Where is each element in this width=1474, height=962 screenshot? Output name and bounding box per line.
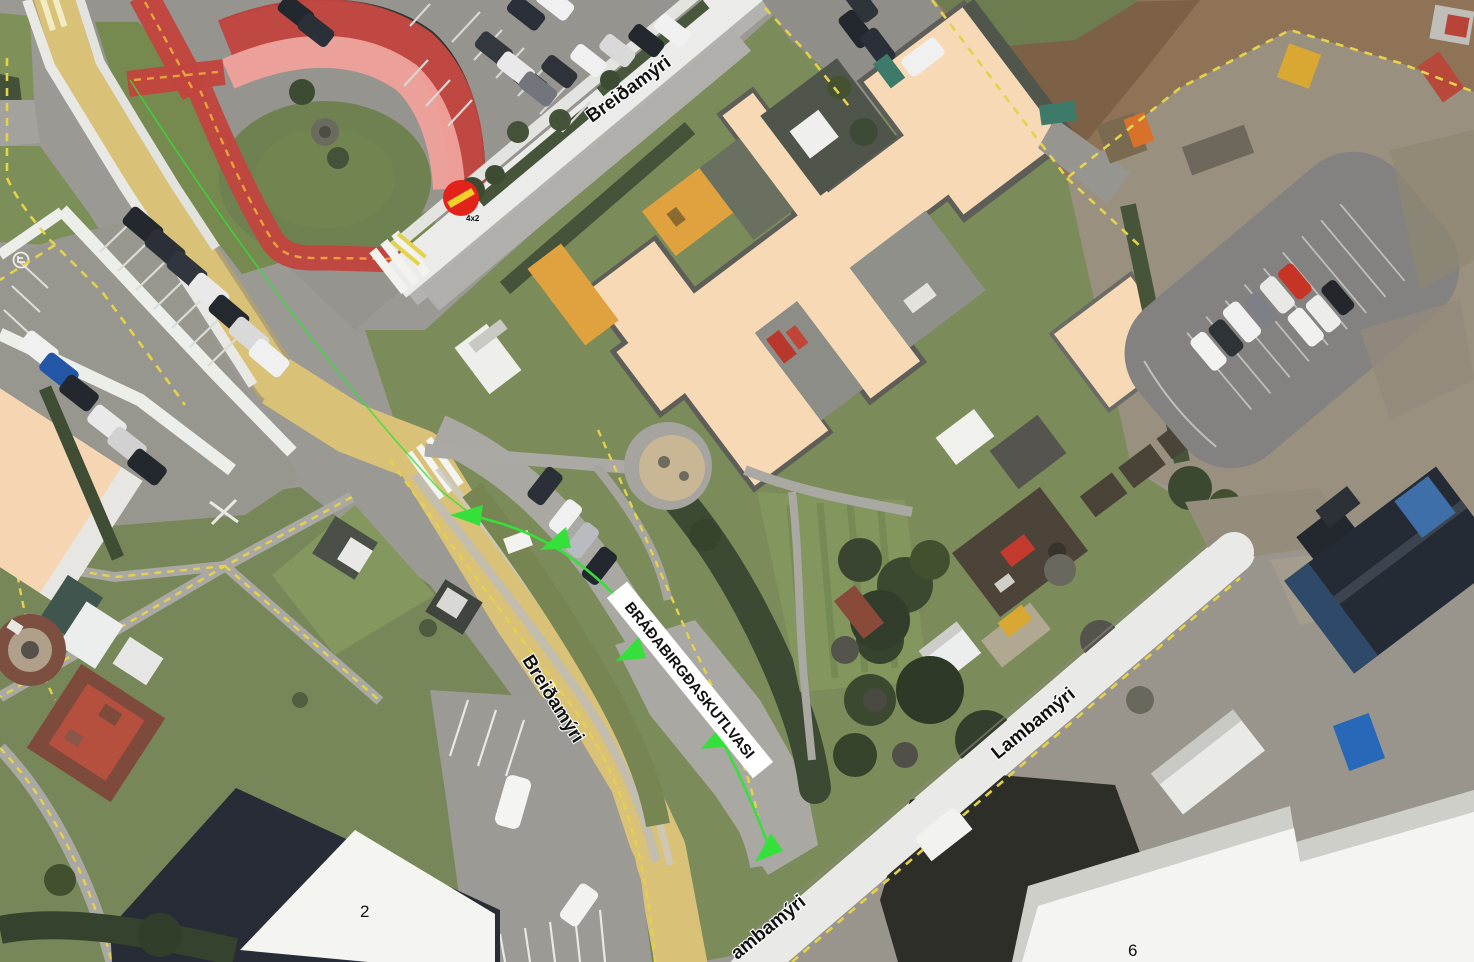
- svg-text:2: 2: [360, 902, 369, 921]
- svg-text:4x2: 4x2: [466, 214, 480, 223]
- svg-text:6: 6: [1128, 941, 1137, 960]
